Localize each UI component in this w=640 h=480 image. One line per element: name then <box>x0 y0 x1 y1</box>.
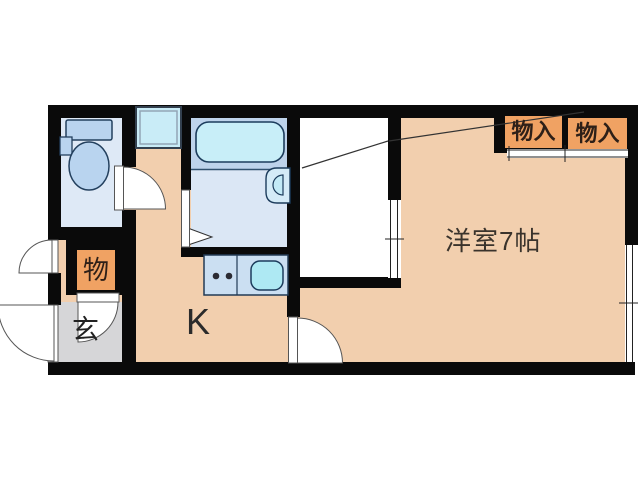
toilet-room-floor <box>61 118 122 227</box>
room-label-storage: 物 <box>77 250 115 290</box>
closet-label-1: 物入 <box>505 116 562 148</box>
floor-plan: 洋室7帖 K 玄 物 物入 物入 <box>0 0 640 480</box>
closet-room-floor <box>300 115 388 277</box>
wall-bath-bottom <box>181 247 300 257</box>
room-label-western: 洋室7帖 <box>445 228 541 254</box>
wall-bath-left <box>181 105 191 190</box>
bathroom-lower-floor <box>191 170 287 247</box>
entrance-door-swing-lower <box>0 305 54 361</box>
bathroom-upper-floor <box>191 118 287 170</box>
wall-closet-right <box>388 105 401 200</box>
wall-closet-bottom <box>287 277 401 288</box>
wall-toilet-right-upper <box>122 105 136 167</box>
wall-left-mid <box>48 273 61 305</box>
room-label-kitchen: K <box>186 304 210 340</box>
closet-label-2: 物入 <box>568 118 627 150</box>
wall-bottom <box>48 362 635 375</box>
entrance-door-swing-upper <box>19 240 52 273</box>
room-label-entrance: 玄 <box>72 317 99 344</box>
wall-left-upper <box>48 105 61 240</box>
